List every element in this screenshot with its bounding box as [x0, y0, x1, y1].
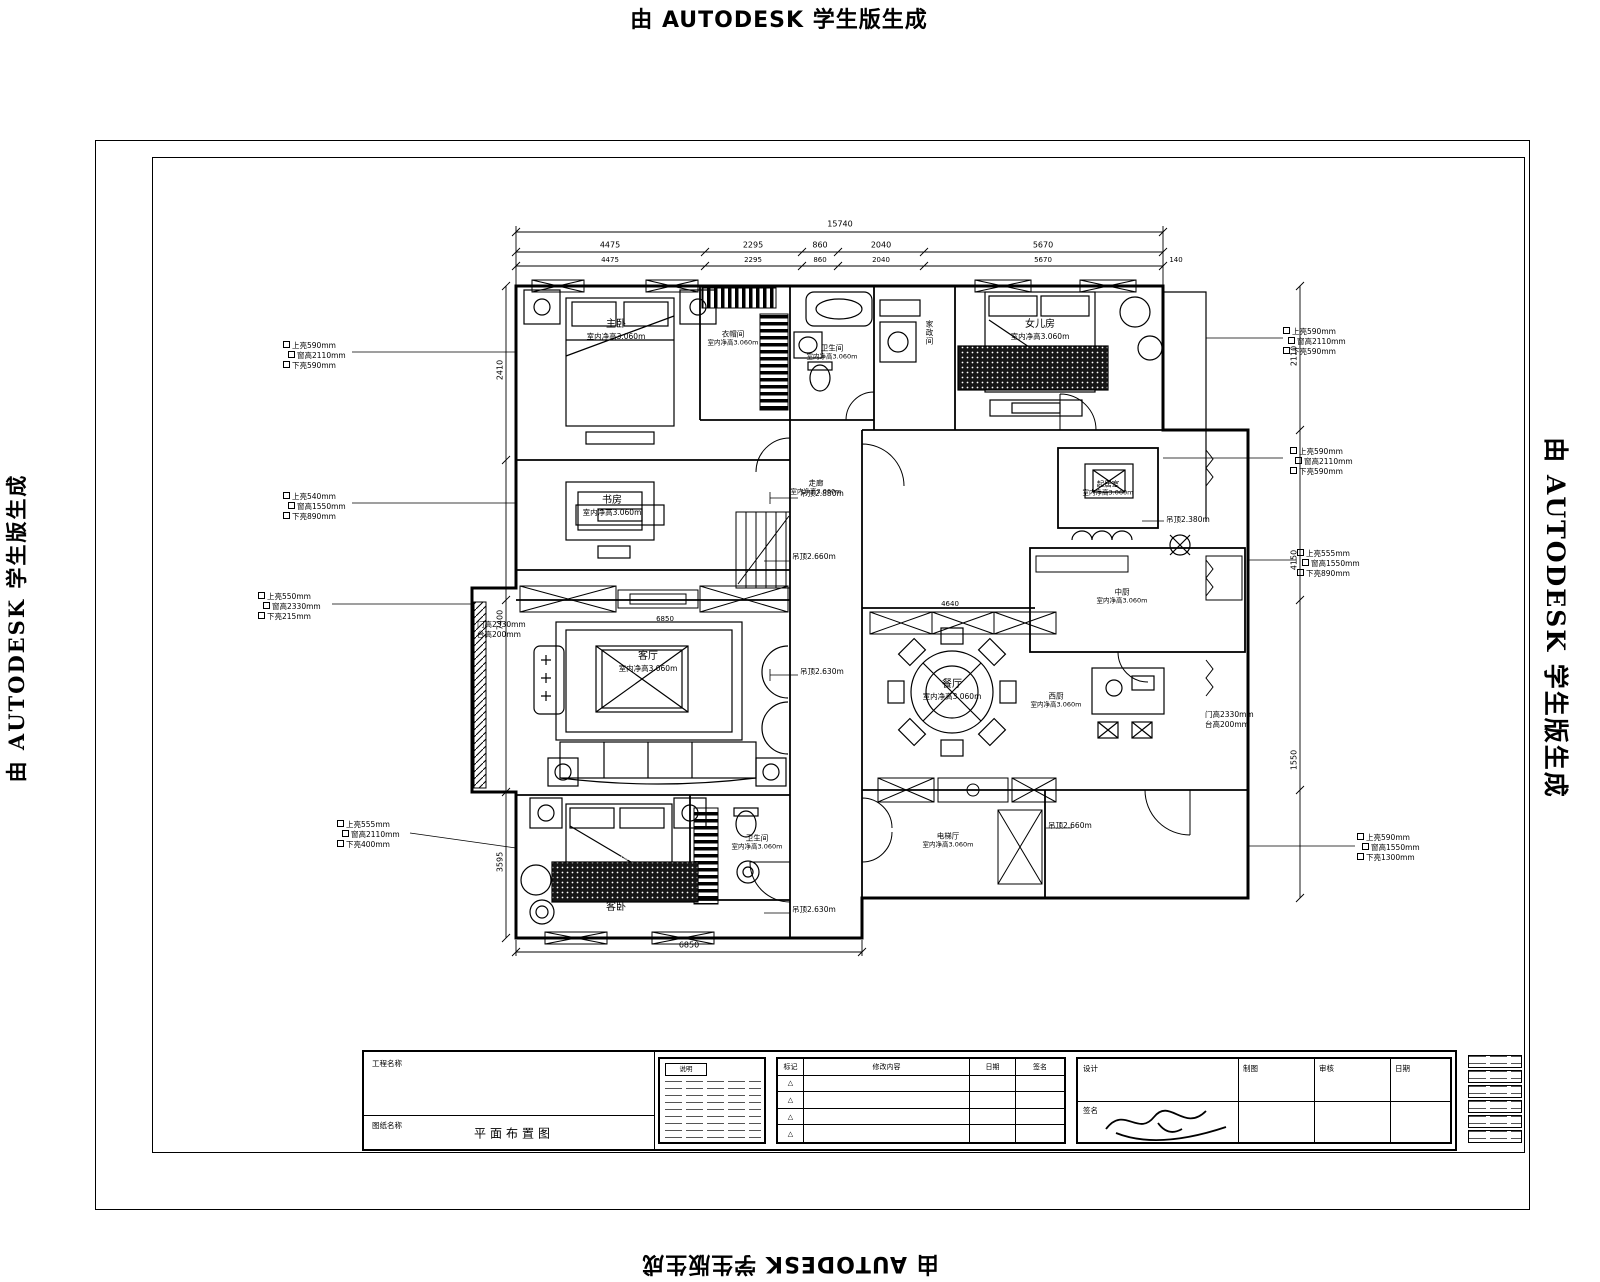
rev-header: 修改内容: [804, 1059, 970, 1076]
study-desk: [566, 482, 654, 558]
designer-label: 设计: [1083, 1063, 1098, 1074]
window-note: 上亮590mm 窗高1550mm 下亮1300mm: [1357, 833, 1420, 863]
room-label-closet: 衣帽间 室内净高3.060m: [708, 329, 759, 347]
dim-end: 140: [1169, 256, 1182, 264]
dim-left: 2410: [496, 360, 505, 380]
door-note: 门高2330mm 台高200mm: [1205, 710, 1254, 730]
room-label-kitchen-cn: 中厨 室内净高3.060m: [1097, 587, 1148, 605]
stamp-row: [1468, 1085, 1522, 1098]
room-label-kitchen-west: 西厨 室内净高3.060m: [1031, 691, 1082, 709]
signature-label: 签名: [1083, 1105, 1098, 1116]
revision-grid: 标记 修改内容 日期 签名 △ △ △ △: [778, 1059, 1064, 1142]
room-label-daughter: 女儿房 室内净高3.060m: [1011, 319, 1070, 341]
drawing-name: 平面布置图: [474, 1125, 554, 1142]
dim-seg: 860: [812, 241, 827, 250]
doors: [750, 392, 1190, 902]
drawing-name-label: 图纸名称: [372, 1120, 402, 1131]
stamp-row: [1468, 1100, 1522, 1113]
sign-divider: [1314, 1059, 1315, 1142]
dim-bottom: 6850: [679, 941, 699, 950]
project-name-label: 工程名称: [372, 1058, 402, 1069]
notes-title: 说明: [665, 1063, 707, 1076]
dim-seg: 4475: [600, 241, 620, 250]
titleblock-divider: [654, 1052, 655, 1149]
sitting-room-furniture: [1072, 464, 1190, 555]
ceiling-note: 吊顶2.630m: [800, 666, 844, 677]
room-label-bath-master: 卫生间 室内净高3.060m: [807, 343, 858, 361]
window-note: 上亮590mm 窗高2110mm 下亮590mm: [283, 341, 346, 371]
titleblock-divider: [364, 1115, 654, 1116]
room-label-guest: 客卧: [606, 902, 626, 915]
ceiling-note: 吊顶2.630m: [792, 904, 836, 915]
window-note: 上亮550mm 窗高2330mm 下亮215mm: [258, 592, 321, 622]
date-label: 日期: [1395, 1063, 1410, 1074]
signature-graphic: [1098, 1103, 1238, 1141]
dim-seg: 2040: [871, 241, 891, 250]
ceiling-note: 吊顶2.660m: [792, 551, 836, 562]
rev-mark: △: [778, 1125, 804, 1142]
drafter-label: 制图: [1243, 1063, 1258, 1074]
room-label-bath-guest: 卫生间 室内净高3.060m: [732, 833, 783, 851]
room-label-housekeeping: 家政间: [924, 320, 935, 346]
dim-inner: 6850: [656, 615, 674, 623]
notes-text: [665, 1081, 761, 1139]
stamp-block: [1468, 1055, 1522, 1147]
room-label-master: 主卧 室内净高3.060m: [587, 319, 646, 341]
door-note: 门高2330mm 台高200mm: [477, 620, 526, 640]
wardrobes: [694, 288, 788, 904]
checker-label: 审核: [1319, 1063, 1334, 1074]
stamp-row: [1468, 1130, 1522, 1143]
rev-mark: △: [778, 1109, 804, 1126]
dim-seg: 4475: [601, 256, 619, 264]
window-note: 上亮590mm 窗高2110mm 下亮590mm: [1290, 447, 1353, 477]
sign-divider: [1238, 1059, 1239, 1142]
window-note: 上亮555mm 窗高2110mm 下亮400mm: [337, 820, 400, 850]
window-note: 上亮540mm 窗高1550mm 下亮890mm: [283, 492, 346, 522]
dim-inner: 4640: [941, 600, 959, 608]
dim-right: 1550: [1290, 750, 1299, 770]
washer: [880, 300, 920, 362]
room-height-guest: 室内净高3.060m: [589, 854, 640, 862]
stairs: [736, 512, 790, 588]
title-block: 工程名称 图纸名称 平面布置图 说明 标记 修改内容 日期 签名 △ △ △ △…: [362, 1050, 1457, 1151]
rev-header: 日期: [970, 1059, 1016, 1076]
room-label-living: 客厅 室内净高3.060m: [619, 651, 678, 673]
room-label-dining: 餐厅 室内净高3.060m: [923, 679, 982, 701]
windows-and-cabinets: [474, 280, 1242, 944]
stamp-row: [1468, 1115, 1522, 1128]
room-label-study: 书房 室内净高3.060m: [583, 495, 642, 517]
window-note: 上亮555mm 窗高1550mm 下亮890mm: [1297, 549, 1360, 579]
window-note: 上亮590mm 窗高2110mm 下亮590mm: [1283, 327, 1346, 357]
ceiling-note: 吊顶2.880m: [800, 488, 844, 499]
room-label-elevator-hall: 电梯厅 室内净高3.060m: [923, 831, 974, 849]
dim-seg: 2040: [872, 256, 890, 264]
signature-block: 设计 制图 审核 日期 签名: [1076, 1057, 1452, 1144]
bathtub: [794, 292, 872, 391]
dim-seg: 5670: [1034, 256, 1052, 264]
living-room-furniture: [534, 622, 788, 786]
dim-left: 3595: [496, 852, 505, 872]
dim-seg: 860: [813, 256, 826, 264]
dim-seg: 5670: [1033, 241, 1053, 250]
cad-floorplan-sheet: { "watermark": { "text": "由 AUTODESK 学生版…: [0, 0, 1600, 1280]
stamp-row: [1468, 1070, 1522, 1083]
sign-divider: [1390, 1059, 1391, 1142]
stamp-row: [1468, 1055, 1522, 1068]
notes-box: 说明: [658, 1057, 766, 1144]
rev-mark: △: [778, 1076, 804, 1093]
sign-divider: [1078, 1101, 1450, 1102]
kitchen-island: [1092, 668, 1164, 738]
dim-total: 15740: [827, 220, 852, 229]
revision-table: 标记 修改内容 日期 签名 △ △ △ △: [776, 1057, 1066, 1144]
dim-seg: 2295: [744, 256, 762, 264]
rev-header: 签名: [1016, 1059, 1064, 1076]
rev-header: 标记: [778, 1059, 804, 1076]
ceiling-note: 吊顶2.660m: [1048, 820, 1092, 831]
rev-mark: △: [778, 1092, 804, 1109]
dim-seg: 2295: [743, 241, 763, 250]
room-label-sitting: 起居室 室内净高3.060m: [1083, 479, 1134, 497]
ceiling-note: 吊顶2.380m: [1166, 514, 1210, 525]
